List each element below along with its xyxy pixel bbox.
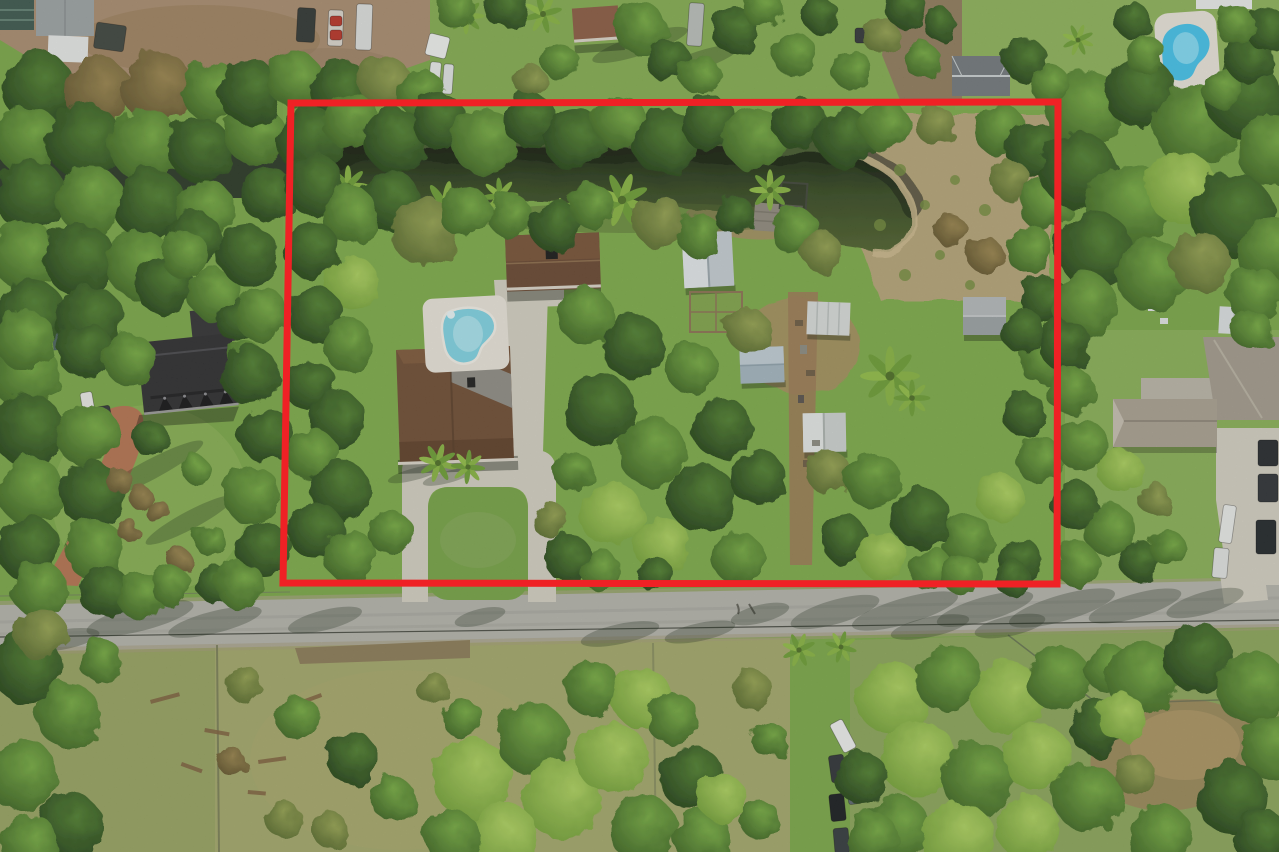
aerial-photo-canvas bbox=[0, 0, 1279, 852]
photo-grain-light bbox=[0, 0, 1279, 852]
aerial-property-photo bbox=[0, 0, 1279, 852]
